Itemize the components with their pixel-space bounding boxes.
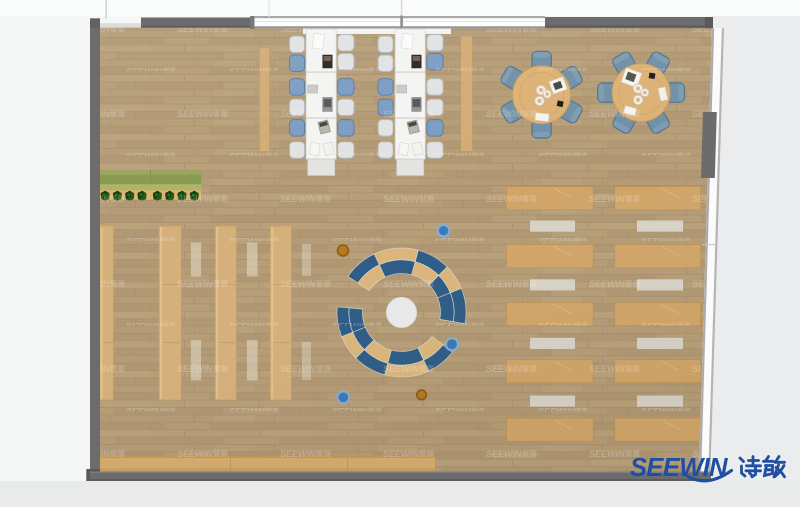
svg-text:SEEWIN: SEEWIN [630, 454, 728, 482]
